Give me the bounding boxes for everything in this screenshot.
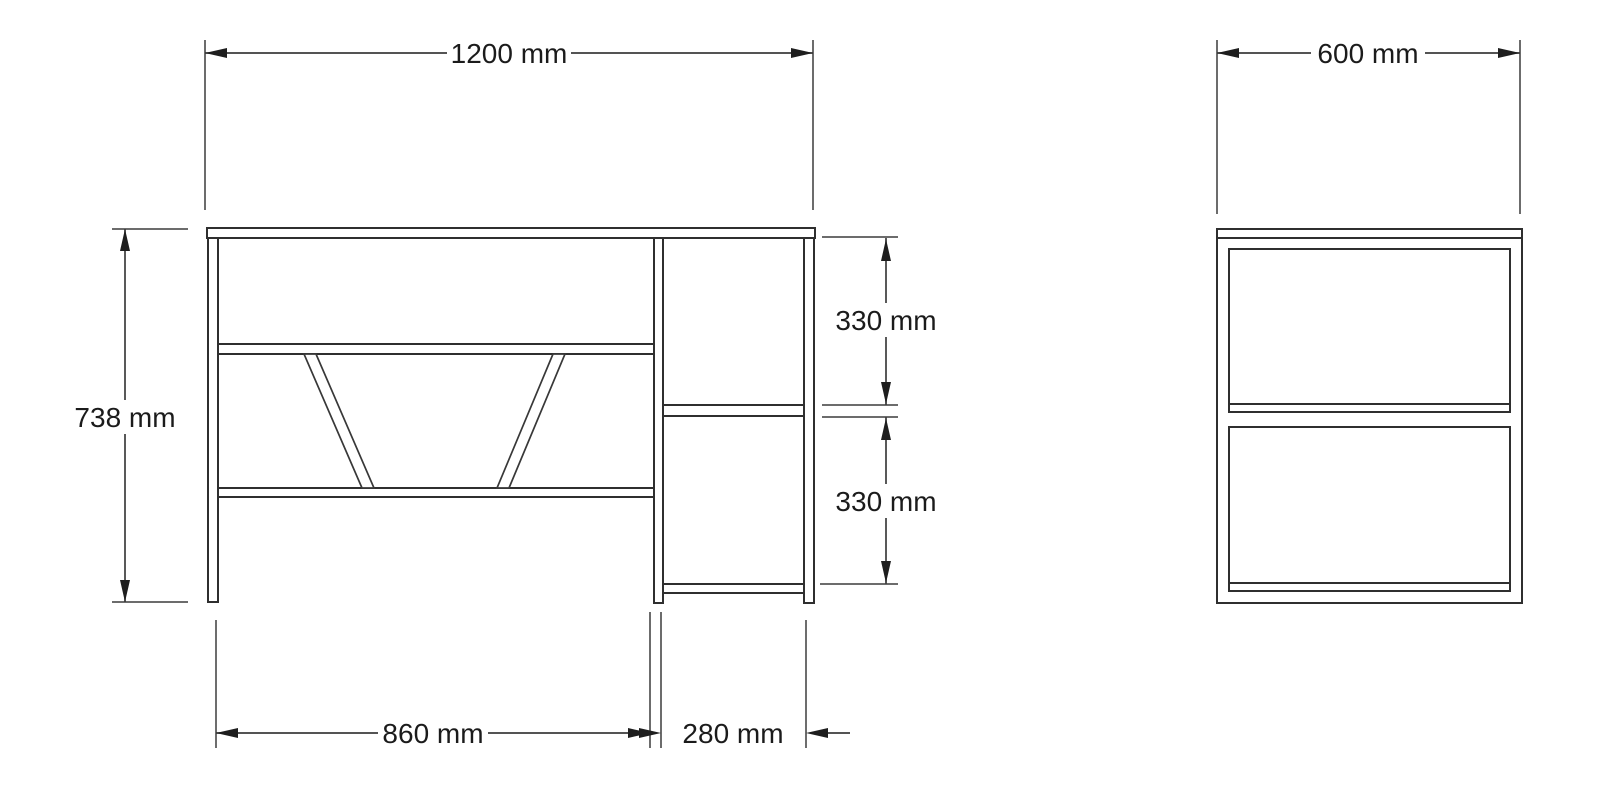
arrowhead-up bbox=[120, 229, 130, 251]
arrowhead-right bbox=[1498, 48, 1520, 58]
dimension-label-depth: 600 mm bbox=[1317, 38, 1418, 69]
side-view-upper-panel bbox=[1229, 249, 1510, 412]
cross-brace-right bbox=[497, 354, 565, 488]
dimension-label-side-upper-opening: 330 mm bbox=[835, 305, 936, 336]
arrowhead-up bbox=[881, 418, 891, 440]
dimension-overall-height: 738 mm bbox=[68, 229, 188, 602]
front-divider-panel bbox=[654, 237, 663, 603]
dimension-shelf-section-width: 280 mm bbox=[678, 620, 850, 750]
dimension-depth: 600 mm bbox=[1217, 36, 1520, 214]
arrowhead-down bbox=[881, 561, 891, 583]
dimension-label-overall-height: 738 mm bbox=[74, 402, 175, 433]
arrowhead-left bbox=[205, 48, 227, 58]
arrowhead-down bbox=[881, 382, 891, 404]
desk-lower-shelf bbox=[218, 488, 654, 497]
arrowhead-left bbox=[806, 728, 828, 738]
arrowhead-left bbox=[216, 728, 238, 738]
side-unit-bottom-shelf bbox=[663, 584, 804, 593]
dimension-label-overall-width: 1200 mm bbox=[451, 38, 568, 69]
dimension-label-side-lower-opening: 330 mm bbox=[835, 486, 936, 517]
side-view bbox=[1217, 229, 1522, 603]
dimension-side-lower-opening: 330 mm bbox=[820, 417, 943, 584]
dimension-overall-width: 1200 mm bbox=[205, 36, 813, 210]
front-right-leg bbox=[804, 237, 814, 603]
side-unit-middle-shelf bbox=[663, 405, 804, 416]
dimension-drawing-svg: 1200 mm 738 mm 330 mm bbox=[0, 0, 1600, 787]
desk-upper-shelf bbox=[218, 344, 654, 354]
front-view bbox=[207, 228, 815, 603]
dimension-side-upper-opening: 330 mm bbox=[822, 237, 943, 405]
desk-tabletop bbox=[207, 228, 815, 238]
arrowhead-down bbox=[120, 580, 130, 602]
dimension-label-shelf-section-width: 280 mm bbox=[682, 718, 783, 749]
front-left-leg bbox=[208, 237, 218, 602]
arrowhead-left bbox=[1217, 48, 1239, 58]
arrowhead-right bbox=[791, 48, 813, 58]
arrowhead-up bbox=[881, 239, 891, 261]
cross-brace-left bbox=[304, 354, 374, 488]
dimension-desk-section-width: 860 mm bbox=[216, 612, 661, 750]
technical-drawing-canvas: 1200 mm 738 mm 330 mm bbox=[0, 0, 1600, 787]
dimension-label-desk-section-width: 860 mm bbox=[382, 718, 483, 749]
side-view-lower-panel bbox=[1229, 427, 1510, 591]
